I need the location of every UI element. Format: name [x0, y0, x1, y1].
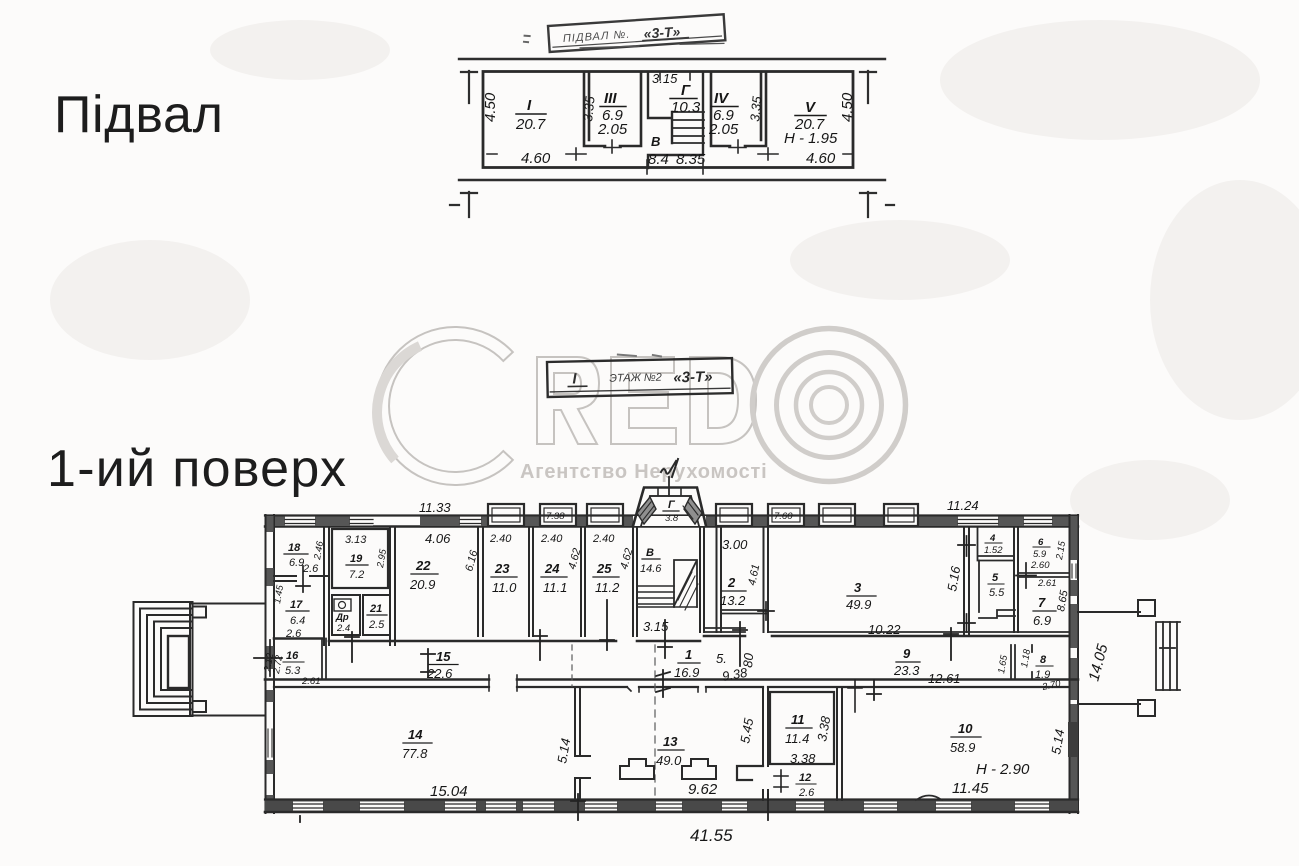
svg-text:17: 17 — [290, 599, 303, 611]
svg-text:12: 12 — [799, 772, 811, 784]
svg-text:5.3: 5.3 — [285, 665, 301, 677]
svg-text:11.1: 11.1 — [543, 580, 567, 595]
svg-text:1.9: 1.9 — [1035, 669, 1050, 681]
svg-text:11.4: 11.4 — [785, 731, 809, 746]
svg-text:23: 23 — [494, 561, 510, 576]
svg-text:7.2: 7.2 — [349, 569, 364, 581]
svg-text:16.9: 16.9 — [674, 665, 699, 680]
svg-text:2.6: 2.6 — [798, 787, 815, 799]
svg-text:58.9: 58.9 — [950, 740, 975, 755]
svg-text:12.61: 12.61 — [928, 671, 961, 686]
svg-text:19: 19 — [350, 553, 363, 565]
svg-text:5.: 5. — [716, 651, 727, 666]
svg-text:11.45: 11.45 — [952, 780, 989, 797]
svg-text:В: В — [651, 134, 660, 149]
svg-text:1-ий поверх: 1-ий поверх — [47, 440, 347, 498]
svg-text:23.3: 23.3 — [893, 663, 920, 678]
svg-text:2.40: 2.40 — [489, 533, 512, 545]
svg-text:13: 13 — [663, 734, 678, 749]
svg-text:8.35: 8.35 — [676, 151, 706, 168]
svg-text:10.3: 10.3 — [671, 99, 701, 116]
svg-text:2.05: 2.05 — [708, 121, 739, 138]
svg-text:«3-Т»: «3-Т» — [673, 369, 713, 387]
svg-text:Н - 1.95: Н - 1.95 — [784, 130, 838, 147]
svg-text:2.6: 2.6 — [302, 563, 319, 575]
svg-text:8.4: 8.4 — [648, 151, 669, 168]
svg-text:3.38: 3.38 — [790, 751, 816, 766]
svg-text:15: 15 — [436, 649, 451, 664]
svg-text:5.5: 5.5 — [989, 587, 1005, 599]
svg-text:4.50: 4.50 — [839, 92, 856, 122]
svg-text:8: 8 — [1040, 654, 1047, 666]
svg-text:4.06: 4.06 — [425, 531, 451, 546]
svg-text:7: 7 — [1038, 595, 1046, 610]
svg-text:49.9: 49.9 — [846, 597, 871, 612]
svg-text:Н - 2.90: Н - 2.90 — [976, 761, 1030, 778]
svg-text:41.55: 41.55 — [690, 826, 733, 845]
svg-text:3.00: 3.00 — [722, 537, 748, 552]
svg-text:3.15: 3.15 — [652, 71, 678, 86]
svg-text:В: В — [646, 547, 654, 559]
svg-text:Агентство Нерухомості: Агентство Нерухомості — [520, 461, 767, 483]
svg-text:3: 3 — [854, 580, 862, 595]
svg-text:14: 14 — [408, 727, 423, 742]
svg-text:Др: Др — [335, 612, 349, 623]
svg-text:Підвал: Підвал — [54, 86, 224, 144]
svg-text:11.33: 11.33 — [419, 500, 451, 515]
svg-text:18: 18 — [288, 542, 301, 554]
svg-text:4: 4 — [989, 533, 996, 544]
svg-text:5: 5 — [992, 572, 999, 584]
svg-text:11.0: 11.0 — [492, 580, 517, 595]
svg-text:ІV: ІV — [714, 90, 730, 107]
svg-text:3.13: 3.13 — [345, 534, 367, 546]
svg-text:25: 25 — [596, 561, 612, 576]
svg-text:24: 24 — [544, 561, 560, 576]
svg-text:2.4: 2.4 — [336, 623, 350, 634]
svg-text:ІІІ: ІІІ — [604, 90, 617, 107]
svg-text:6: 6 — [1038, 537, 1044, 548]
svg-text:21: 21 — [369, 603, 382, 615]
svg-text:11.2: 11.2 — [595, 580, 620, 595]
svg-text:2.61: 2.61 — [301, 676, 321, 687]
svg-text:13.2: 13.2 — [720, 593, 746, 608]
svg-text:11.24: 11.24 — [947, 498, 979, 513]
svg-text:5.9: 5.9 — [1033, 549, 1047, 560]
svg-text:1.52: 1.52 — [984, 545, 1003, 556]
svg-text:14.6: 14.6 — [640, 563, 662, 575]
svg-text:20.7: 20.7 — [515, 116, 546, 133]
svg-text:6.9: 6.9 — [1033, 613, 1051, 628]
svg-text:3.35: 3.35 — [580, 95, 598, 122]
svg-text:16: 16 — [286, 650, 299, 662]
svg-text:9.62: 9.62 — [688, 781, 718, 798]
svg-text:11: 11 — [791, 712, 805, 727]
svg-text:9: 9 — [903, 646, 911, 661]
svg-text:2.40: 2.40 — [540, 533, 563, 545]
svg-text:3.8: 3.8 — [665, 513, 679, 524]
svg-text:6.4: 6.4 — [290, 615, 305, 627]
svg-text:4.60: 4.60 — [521, 150, 551, 167]
svg-text:4.60: 4.60 — [806, 150, 836, 167]
svg-text:7.60: 7.60 — [774, 511, 793, 522]
svg-text:1: 1 — [685, 647, 692, 662]
svg-text:22: 22 — [415, 558, 431, 573]
svg-text:10: 10 — [958, 721, 973, 736]
svg-text:2.60: 2.60 — [1030, 560, 1050, 571]
svg-text:2.40: 2.40 — [592, 533, 615, 545]
svg-text:7.38: 7.38 — [546, 511, 565, 522]
svg-text:77.8: 77.8 — [402, 746, 428, 761]
svg-text:2: 2 — [727, 575, 736, 590]
svg-text:ЭТАЖ №2: ЭТАЖ №2 — [609, 372, 662, 385]
svg-text:2.61: 2.61 — [1037, 578, 1057, 589]
svg-text:6.9: 6.9 — [289, 557, 304, 569]
svg-text:49.0: 49.0 — [656, 753, 682, 768]
svg-text:22.6: 22.6 — [426, 666, 453, 681]
svg-text:2.5: 2.5 — [368, 619, 385, 631]
svg-text:15.04: 15.04 — [430, 783, 468, 800]
svg-text:2.05: 2.05 — [597, 121, 628, 138]
svg-text:Г: Г — [681, 82, 691, 99]
svg-text:3.35: 3.35 — [747, 95, 765, 122]
svg-text:20.9: 20.9 — [409, 577, 435, 592]
svg-text:4.50: 4.50 — [482, 92, 499, 122]
